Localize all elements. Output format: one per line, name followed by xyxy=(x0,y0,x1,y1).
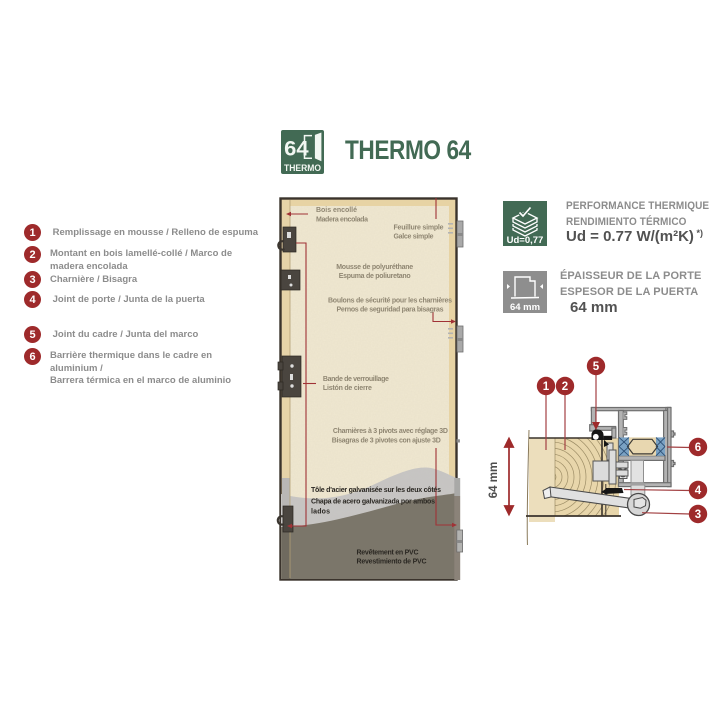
svg-text:Bisagras de 3 pivotes con ajus: Bisagras de 3 pivotes con ajuste 3D xyxy=(332,438,441,445)
svg-text:64 mm: 64 mm xyxy=(488,462,500,498)
svg-text:Revêtement en PVC: Revêtement en PVC xyxy=(357,550,419,557)
svg-text:Tôle d'acier galvanisée sur le: Tôle d'acier galvanisée sur les deux côt… xyxy=(311,487,441,494)
svg-text:3: 3 xyxy=(695,509,701,521)
svg-text:Bande de verrouillage: Bande de verrouillage xyxy=(323,376,389,383)
svg-text:Espuma de poliuretano: Espuma de poliuretano xyxy=(339,273,411,280)
svg-text:Feuillure simple: Feuillure simple xyxy=(394,225,444,232)
svg-text:5: 5 xyxy=(593,361,600,373)
svg-text:4: 4 xyxy=(695,485,702,497)
svg-text:Listón de cierre: Listón de cierre xyxy=(323,385,372,392)
svg-text:Mousse de polyuréthane: Mousse de polyuréthane xyxy=(336,264,413,271)
svg-text:Chapa de acero galvanizada por: Chapa de acero galvanizada por ambos xyxy=(311,499,435,506)
svg-text:Charnières à 3 pivots avec rég: Charnières à 3 pivots avec réglage 3D xyxy=(333,428,448,435)
svg-text:Revestimiento de PVC: Revestimiento de PVC xyxy=(357,559,427,566)
svg-text:Boulons de sécurité pour les c: Boulons de sécurité pour les charnières xyxy=(328,298,452,305)
svg-text:Ud=0,77: Ud=0,77 xyxy=(507,235,544,246)
svg-text:THERMO: THERMO xyxy=(284,163,321,173)
svg-text:Bois encollé: Bois encollé xyxy=(316,207,357,214)
svg-text:Galce simple: Galce simple xyxy=(394,234,434,241)
svg-text:64: 64 xyxy=(284,137,309,161)
svg-text:6: 6 xyxy=(695,442,701,454)
svg-text:Pernos de seguridad para bisag: Pernos de seguridad para bisagras xyxy=(337,307,444,314)
svg-text:Madera encolada: Madera encolada xyxy=(316,217,368,224)
svg-text:2: 2 xyxy=(562,381,568,393)
svg-text:1: 1 xyxy=(543,381,550,393)
svg-text:lados: lados xyxy=(311,509,330,516)
svg-text:64 mm: 64 mm xyxy=(510,302,540,313)
